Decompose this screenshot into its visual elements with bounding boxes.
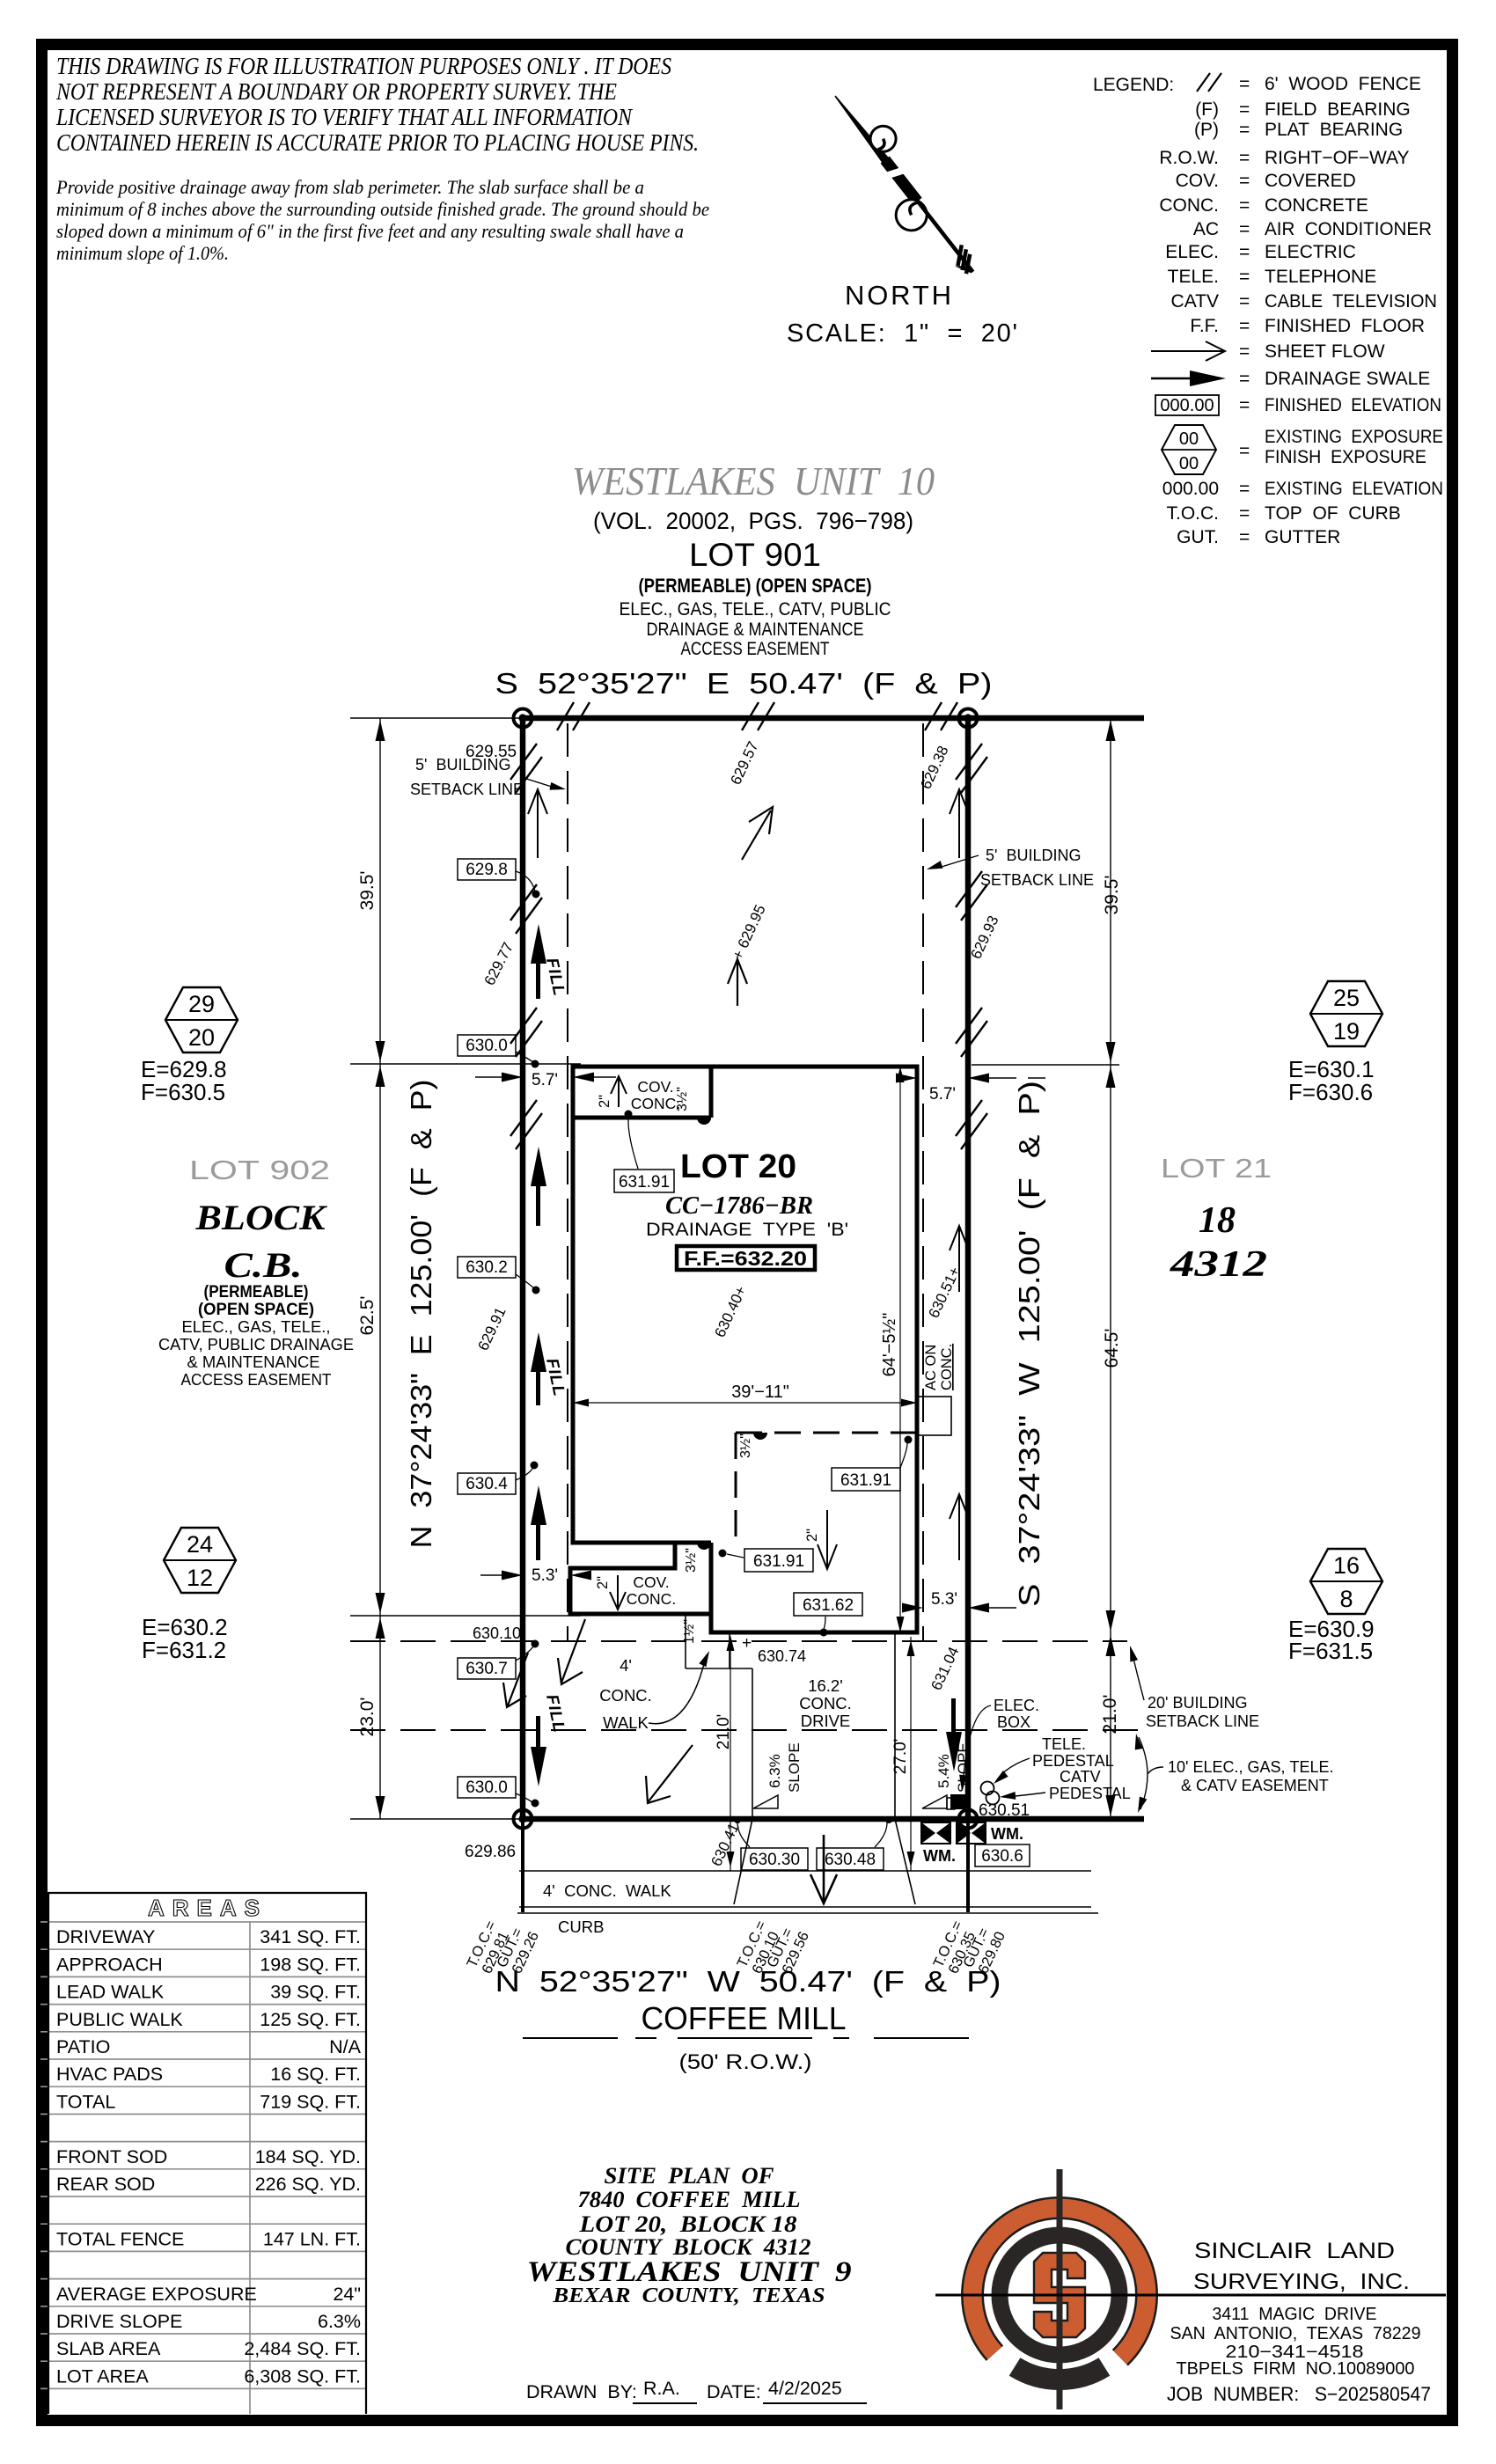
svg-text:630.48: 630.48 [825, 1851, 876, 1869]
svg-text:F=631.5: F=631.5 [1288, 1638, 1373, 1664]
svg-text:+: + [742, 1634, 752, 1653]
svg-text:minimum of 8 inches above the: minimum of 8 inches above the surroundin… [56, 198, 709, 220]
svg-text:630.7: 630.7 [466, 1660, 508, 1678]
svg-text:DATE:: DATE: [707, 2381, 761, 2402]
svg-text:630.2: 630.2 [466, 1258, 508, 1277]
svg-text:39.5': 39.5' [1102, 876, 1122, 915]
svg-text:=: = [1239, 369, 1250, 389]
svg-text:20: 20 [188, 1024, 215, 1051]
svg-text:5' BUILDING: 5' BUILDING [415, 756, 510, 774]
svg-text:CONC.: CONC. [627, 1590, 676, 1608]
svg-text:DRAINAGE & MAINTENANCE: DRAINAGE & MAINTENANCE [647, 620, 864, 640]
svg-text:ELECTRIC: ELECTRIC [1265, 242, 1356, 262]
svg-text:PEDESTAL: PEDESTAL [1049, 1785, 1131, 1802]
svg-text:12: 12 [187, 1565, 213, 1591]
svg-text:=: = [1239, 148, 1250, 168]
svg-text:TBPELS FIRM NO.10089000: TBPELS FIRM NO.10089000 [1177, 2359, 1415, 2379]
svg-text:FINISH EXPOSURE: FINISH EXPOSURE [1265, 447, 1426, 467]
svg-text:(PERMEABLE) (OPEN SPACE): (PERMEABLE) (OPEN SPACE) [639, 575, 872, 597]
svg-text:WM.: WM. [991, 1825, 1023, 1843]
svg-text:5.7': 5.7' [532, 1071, 558, 1089]
svg-text:F=630.6: F=630.6 [1288, 1079, 1373, 1105]
svg-text:LEGEND:: LEGEND: [1093, 75, 1174, 95]
svg-text:F.F.=632.20: F.F.=632.20 [684, 1247, 807, 1270]
svg-text:2": 2" [804, 1529, 820, 1542]
svg-text:64'−5½": 64'−5½" [880, 1313, 899, 1377]
svg-text:TELE.: TELE. [1042, 1735, 1086, 1753]
svg-text:SLAB AREA: SLAB AREA [56, 2338, 161, 2359]
svg-text:198 SQ. FT.: 198 SQ. FT. [260, 1954, 361, 1975]
svg-text:18: 18 [1199, 1200, 1236, 1241]
svg-text:=: = [1239, 219, 1250, 239]
svg-text:629.91: 629.91 [474, 1305, 509, 1353]
svg-text:REAR SOD: REAR SOD [56, 2174, 155, 2195]
svg-text:AVERAGE EXPOSURE: AVERAGE EXPOSURE [56, 2284, 257, 2305]
svg-text:PEDESTAL: PEDESTAL [1032, 1752, 1114, 1770]
svg-text:THIS DRAWING IS FOR ILLUSTRATI: THIS DRAWING IS FOR ILLUSTRATION PURPOSE… [56, 52, 671, 79]
svg-text:WM.: WM. [923, 1847, 956, 1865]
svg-text:BOX: BOX [997, 1713, 1030, 1731]
svg-text:C.B.: C.B. [224, 1245, 303, 1285]
svg-text:ELEC.: ELEC. [994, 1697, 1039, 1714]
svg-text:WESTLAKES UNIT 10: WESTLAKES UNIT 10 [572, 458, 935, 503]
svg-text:DRAWN BY:: DRAWN BY: [526, 2381, 637, 2402]
svg-text:FIELD BEARING: FIELD BEARING [1265, 99, 1411, 120]
svg-text:LOT AREA: LOT AREA [56, 2365, 149, 2387]
svg-text:=: = [1239, 479, 1250, 499]
svg-text:WESTLAKES UNIT 9: WESTLAKES UNIT 9 [527, 2256, 852, 2288]
svg-text:BEXAR COUNTY, TEXAS: BEXAR COUNTY, TEXAS [552, 2284, 825, 2307]
svg-text:=: = [1239, 171, 1250, 191]
svg-text:7840 COFFEE MILL: 7840 COFFEE MILL [578, 2187, 801, 2212]
svg-text:3½": 3½" [675, 1087, 690, 1111]
svg-text:2": 2" [595, 1576, 611, 1589]
svg-text:23.0': 23.0' [357, 1698, 378, 1737]
svg-text:SCALE: 1" = 20': SCALE: 1" = 20' [787, 319, 1017, 348]
svg-text:SAN ANTONIO, TEXAS 78229: SAN ANTONIO, TEXAS 78229 [1170, 2324, 1421, 2343]
svg-text:CONC.: CONC. [1159, 195, 1219, 216]
svg-text:24": 24" [333, 2284, 361, 2305]
svg-text:N 52°35'27" W 50.47' (F &: N 52°35'27" W 50.47' (F & P) [495, 1965, 1001, 1998]
svg-text:S 37°24'33" W 125.00' (F: S 37°24'33" W 125.00' (F & P) [1013, 1081, 1045, 1607]
svg-text:6' WOOD FENCE: 6' WOOD FENCE [1265, 74, 1421, 94]
svg-text:CATV: CATV [1060, 1768, 1101, 1786]
svg-text:125 SQ. FT.: 125 SQ. FT. [260, 2009, 361, 2030]
svg-text:5.4%: 5.4% [935, 1754, 952, 1788]
svg-text:ACCESS EASEMENT: ACCESS EASEMENT [681, 639, 830, 659]
svg-text:AC: AC [1193, 219, 1219, 239]
svg-text:SHEET FLOW: SHEET FLOW [1265, 341, 1385, 362]
svg-text:CONC.: CONC. [799, 1694, 852, 1712]
svg-text:184 SQ. YD.: 184 SQ. YD. [255, 2146, 361, 2167]
svg-text:EXISTING EXPOSURE: EXISTING EXPOSURE [1265, 427, 1443, 447]
svg-text:62.5': 62.5' [357, 1296, 378, 1336]
svg-text:FINISHED ELEVATION: FINISHED ELEVATION [1265, 395, 1441, 415]
svg-text:LOT 20, BLOCK 18: LOT 20, BLOCK 18 [578, 2211, 796, 2237]
svg-text:LEAD WALK: LEAD WALK [56, 1982, 165, 2003]
svg-text:ELEC., GAS, TELE.,: ELEC., GAS, TELE., [182, 1318, 331, 1336]
svg-text:LOT 21: LOT 21 [1161, 1153, 1272, 1184]
svg-text:630.0: 630.0 [466, 1037, 508, 1055]
svg-text:DRAINAGE SWALE: DRAINAGE SWALE [1265, 369, 1430, 389]
svg-text:CONC.: CONC. [599, 1686, 652, 1705]
svg-text:EXISTING ELEVATION: EXISTING ELEVATION [1265, 479, 1443, 499]
svg-text:R.A.: R.A. [643, 2378, 680, 2399]
svg-text:LOT 901: LOT 901 [689, 537, 821, 573]
svg-text:SETBACK LINE: SETBACK LINE [410, 781, 524, 798]
svg-text:LOT 20: LOT 20 [680, 1148, 796, 1185]
svg-text:S 52°35'27" E 50.47' (F &: S 52°35'27" E 50.47' (F & P) [495, 667, 993, 700]
svg-text:4/2/2025: 4/2/2025 [768, 2378, 842, 2399]
svg-text:TOTAL FENCE: TOTAL FENCE [56, 2228, 184, 2249]
svg-text:631.91: 631.91 [753, 1552, 804, 1571]
svg-text:=: = [1239, 291, 1250, 312]
svg-text:5.3': 5.3' [931, 1590, 957, 1609]
svg-text:PLAT BEARING: PLAT BEARING [1265, 120, 1403, 140]
svg-text:AREAS: AREAS [148, 1895, 268, 1921]
svg-text:TOTAL: TOTAL [56, 2091, 115, 2112]
svg-text:21.0': 21.0' [715, 1714, 733, 1750]
svg-text:CONCRETE: CONCRETE [1265, 195, 1368, 216]
svg-text:SITE PLAN OF: SITE PLAN OF [605, 2163, 774, 2189]
svg-text:21.0': 21.0' [1100, 1695, 1120, 1734]
svg-text:CABLE TELEVISION: CABLE TELEVISION [1265, 291, 1437, 312]
svg-text:ACCESS EASEMENT: ACCESS EASEMENT [181, 1371, 332, 1389]
svg-text:1½": 1½" [682, 1619, 697, 1644]
svg-text:PUBLIC WALK: PUBLIC WALK [56, 2009, 183, 2030]
svg-text:TELE.: TELE. [1168, 267, 1219, 287]
svg-text:APPROACH: APPROACH [56, 1954, 163, 1975]
svg-text:=: = [1239, 195, 1250, 216]
svg-text:5' BUILDING: 5' BUILDING [986, 847, 1081, 864]
svg-text:(PERMEABLE): (PERMEABLE) [204, 1283, 309, 1302]
svg-text:R.O.W.: R.O.W. [1159, 148, 1219, 168]
svg-text:10' ELEC., GAS, TELE.: 10' ELEC., GAS, TELE. [1168, 1758, 1334, 1776]
svg-text:T.O.C.: T.O.C. [1166, 503, 1219, 524]
svg-text:N 37°24'33" E 125.00' (F: N 37°24'33" E 125.00' (F & P) [405, 1080, 437, 1549]
svg-text:629.86: 629.86 [465, 1843, 516, 1861]
svg-text:64.5': 64.5' [1102, 1329, 1122, 1368]
svg-text:F=631.2: F=631.2 [142, 1637, 226, 1663]
svg-text:(50' R.O.W.): (50' R.O.W.) [679, 2050, 812, 2074]
svg-text:00: 00 [1179, 454, 1199, 473]
svg-text:=: = [1239, 341, 1250, 362]
svg-text:=: = [1239, 527, 1250, 547]
svg-text:341 SQ. FT.: 341 SQ. FT. [260, 1926, 361, 1947]
svg-text:FILL: FILL [542, 1357, 568, 1399]
svg-text:6.3%: 6.3% [318, 2311, 361, 2332]
svg-text:8: 8 [1339, 1586, 1353, 1612]
svg-text:COV.: COV. [637, 1078, 673, 1096]
svg-text:630.51+: 630.51+ [925, 1264, 963, 1320]
svg-text:226 SQ. YD.: 226 SQ. YD. [255, 2174, 361, 2195]
svg-text:630.30: 630.30 [749, 1851, 800, 1869]
svg-text:3½": 3½" [738, 1434, 753, 1458]
svg-text:39 SQ. FT.: 39 SQ. FT. [270, 1982, 361, 2003]
svg-text:=: = [1239, 74, 1250, 94]
svg-text:AIR CONDITIONER: AIR CONDITIONER [1265, 219, 1432, 239]
svg-text:N/A: N/A [329, 2036, 362, 2057]
svg-text:(OPEN SPACE): (OPEN SPACE) [198, 1301, 314, 1319]
svg-text:& MAINTENANCE: & MAINTENANCE [187, 1353, 320, 1371]
svg-text:LICENSED SURVEYOR IS TO VERIFY: LICENSED SURVEYOR IS TO VERIFY THAT ALL … [55, 103, 633, 130]
svg-text:19: 19 [1333, 1018, 1360, 1045]
svg-text:29: 29 [188, 991, 215, 1017]
svg-text:16: 16 [1333, 1552, 1360, 1579]
svg-text:629.77: 629.77 [481, 940, 517, 988]
svg-text:000.00: 000.00 [1160, 396, 1214, 415]
svg-text:CC−1786−BR: CC−1786−BR [665, 1192, 813, 1220]
svg-text:630.6: 630.6 [981, 1847, 1023, 1866]
svg-text:ELEC.: ELEC. [1165, 242, 1219, 262]
svg-text:630.40+: 630.40+ [711, 1283, 749, 1339]
svg-text:000.00: 000.00 [1162, 479, 1219, 499]
svg-text:630.41: 630.41 [708, 1821, 742, 1869]
svg-text:20' BUILDING: 20' BUILDING [1148, 1694, 1247, 1712]
svg-text:24: 24 [187, 1531, 213, 1558]
svg-text:TELEPHONE: TELEPHONE [1265, 267, 1376, 287]
svg-text:631.91: 631.91 [619, 1173, 670, 1192]
svg-text:6.3%: 6.3% [766, 1754, 783, 1788]
svg-text:3411 MAGIC DRIVE: 3411 MAGIC DRIVE [1213, 2305, 1377, 2324]
svg-text:DRIVEWAY: DRIVEWAY [56, 1926, 155, 1947]
svg-text:630.51: 630.51 [979, 1801, 1030, 1820]
svg-text:=: = [1239, 99, 1250, 120]
svg-text:6,308 SQ. FT.: 6,308 SQ. FT. [244, 2365, 361, 2387]
svg-text:00: 00 [1179, 429, 1199, 449]
svg-text:GUT.: GUT. [1177, 527, 1219, 547]
svg-text:F=630.5: F=630.5 [141, 1079, 225, 1105]
svg-text:FILL: FILL [542, 1693, 568, 1735]
svg-text:630.4: 630.4 [466, 1475, 508, 1493]
svg-text:=: = [1239, 395, 1250, 415]
svg-text:SURVEYING, INC.: SURVEYING, INC. [1193, 2270, 1410, 2294]
svg-text:=: = [1239, 242, 1250, 262]
svg-text:CONC.: CONC. [939, 1344, 955, 1390]
svg-text:F.F.: F.F. [1190, 316, 1219, 336]
svg-text:4' CONC. WALK: 4' CONC. WALK [543, 1881, 671, 1900]
svg-text:COVERED: COVERED [1265, 171, 1356, 191]
svg-text:FINISHED FLOOR: FINISHED FLOOR [1265, 316, 1425, 336]
svg-text:minimum slope of 1.0%.: minimum slope of 1.0%. [56, 242, 229, 264]
svg-text:3½": 3½" [684, 1548, 699, 1573]
svg-text:5.7': 5.7' [929, 1085, 956, 1104]
svg-text:(F): (F) [1195, 99, 1219, 120]
svg-text:=: = [1239, 267, 1250, 287]
svg-text:27.0': 27.0' [891, 1739, 910, 1775]
svg-text:NOT REPRESENT A BOUNDARY OR PR: NOT REPRESENT A BOUNDARY OR PROPERTY SUR… [55, 77, 617, 105]
svg-text:SINCLAIR LAND: SINCLAIR LAND [1194, 2239, 1395, 2263]
svg-text:25: 25 [1333, 985, 1360, 1011]
svg-text:GUTTER: GUTTER [1265, 527, 1340, 547]
svg-text:(P): (P) [1194, 120, 1219, 140]
svg-text:COFFEE MILL: COFFEE MILL [642, 2000, 847, 2036]
svg-text:CONC.: CONC. [631, 1095, 680, 1112]
svg-text:630.10: 630.10 [473, 1624, 521, 1642]
svg-text:39.5': 39.5' [357, 871, 378, 911]
svg-text:CURB: CURB [558, 1918, 604, 1936]
svg-text:DRIVE: DRIVE [801, 1712, 851, 1730]
svg-text:(VOL. 20002, PGS. 796−798): (VOL. 20002, PGS. 796−798) [593, 508, 913, 534]
svg-text:RIGHT−OF−WAY: RIGHT−OF−WAY [1265, 148, 1410, 168]
svg-text:SETBACK LINE: SETBACK LINE [980, 871, 1094, 889]
svg-text:629.93: 629.93 [967, 913, 1001, 962]
svg-text:631.91: 631.91 [840, 1471, 891, 1490]
svg-text:16 SQ. FT.: 16 SQ. FT. [270, 2064, 361, 2085]
svg-text:TOP OF CURB: TOP OF CURB [1265, 503, 1401, 524]
svg-text:FRONT SOD: FRONT SOD [56, 2146, 167, 2167]
svg-text:CATV, PUBLIC DRAINAGE: CATV, PUBLIC DRAINAGE [158, 1336, 354, 1353]
svg-text:147 LN. FT.: 147 LN. FT. [263, 2228, 361, 2249]
svg-text:NORTH: NORTH [845, 280, 954, 311]
svg-text:2,484 SQ. FT.: 2,484 SQ. FT. [244, 2338, 361, 2359]
svg-text:COV.: COV. [1176, 171, 1219, 191]
svg-text:JOB NUMBER: S−202580547: JOB NUMBER: S−202580547 [1167, 2383, 1431, 2405]
svg-text:sloped down a minimum of 6" in: sloped down a minimum of 6" in the first… [56, 220, 684, 242]
svg-text:AC ON: AC ON [923, 1345, 939, 1390]
svg-text:631.04: 631.04 [928, 1645, 962, 1693]
svg-text:COV.: COV. [633, 1573, 669, 1591]
svg-text:WALK: WALK [603, 1713, 649, 1732]
svg-text:719 SQ. FT.: 719 SQ. FT. [260, 2091, 361, 2112]
svg-text:39'−11": 39'−11" [731, 1382, 789, 1402]
svg-text:HVAC PADS: HVAC PADS [56, 2064, 163, 2085]
svg-text:DRAINAGE TYPE 'B': DRAINAGE TYPE 'B' [646, 1220, 848, 1240]
svg-text:=: = [1239, 316, 1250, 336]
svg-text:FILL: FILL [542, 957, 568, 999]
svg-text:2": 2" [597, 1095, 612, 1108]
svg-text:631.62: 631.62 [803, 1596, 854, 1615]
svg-text:630.74: 630.74 [758, 1647, 806, 1665]
svg-text:4': 4' [620, 1656, 632, 1675]
svg-text:=: = [1239, 503, 1250, 524]
svg-text:SLOPE: SLOPE [786, 1742, 803, 1793]
svg-text:+ 629.95: + 629.95 [729, 902, 768, 962]
svg-text:16.2': 16.2' [808, 1676, 843, 1695]
svg-text:629.57: 629.57 [727, 739, 761, 788]
svg-text:LOT 902: LOT 902 [189, 1155, 330, 1185]
svg-text:& CATV EASEMENT: & CATV EASEMENT [1181, 1777, 1329, 1794]
svg-text:630.0: 630.0 [466, 1778, 508, 1797]
svg-text:Provide positive drainage away: Provide positive drainage away from slab… [55, 176, 644, 198]
svg-text:CATV: CATV [1171, 291, 1219, 312]
svg-text:CONTAINED HEREIN IS ACCURATE P: CONTAINED HEREIN IS ACCURATE PRIOR TO PL… [56, 128, 699, 156]
svg-text:629.8: 629.8 [466, 861, 508, 879]
svg-text:=: = [1239, 120, 1250, 140]
svg-text:BLOCK: BLOCK [194, 1198, 327, 1237]
svg-text:DRIVE SLOPE: DRIVE SLOPE [56, 2311, 182, 2332]
svg-text:=: = [1239, 441, 1250, 461]
svg-text:5.3': 5.3' [532, 1566, 558, 1585]
svg-text:PATIO: PATIO [56, 2036, 110, 2057]
svg-text:ELEC., GAS, TELE., CATV, PUBLI: ELEC., GAS, TELE., CATV, PUBLIC [620, 599, 891, 620]
svg-text:SETBACK LINE: SETBACK LINE [1146, 1712, 1259, 1730]
svg-text:4312: 4312 [1170, 1244, 1267, 1285]
